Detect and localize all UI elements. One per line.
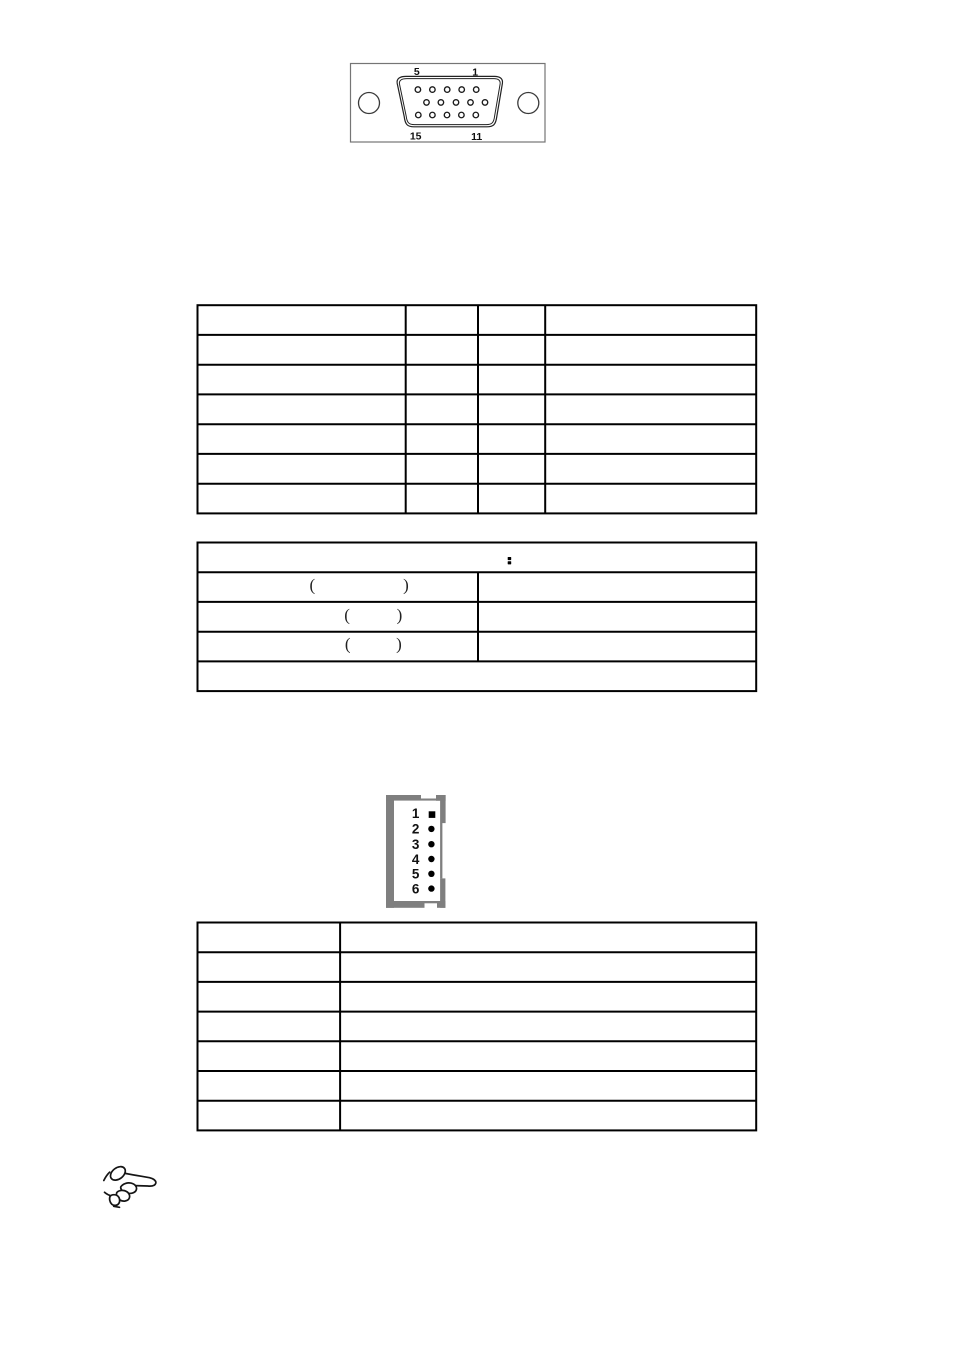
svg-text:4: 4 [412, 852, 420, 867]
svg-text:): ) [396, 635, 402, 654]
svg-text:1: 1 [472, 67, 478, 79]
svg-text:(: ( [344, 605, 350, 624]
svg-text:15: 15 [410, 130, 422, 142]
svg-text:11: 11 [471, 131, 482, 143]
svg-text:2: 2 [412, 822, 420, 837]
svg-text:5: 5 [414, 66, 420, 78]
svg-text:(: ( [309, 576, 315, 595]
svg-text:5: 5 [412, 867, 420, 882]
svg-text:(: ( [345, 635, 351, 654]
svg-text:3: 3 [412, 837, 420, 852]
svg-text:1: 1 [412, 806, 420, 821]
svg-text:6: 6 [412, 881, 420, 896]
svg-text:): ) [397, 605, 403, 624]
svg-text:): ) [403, 576, 409, 595]
